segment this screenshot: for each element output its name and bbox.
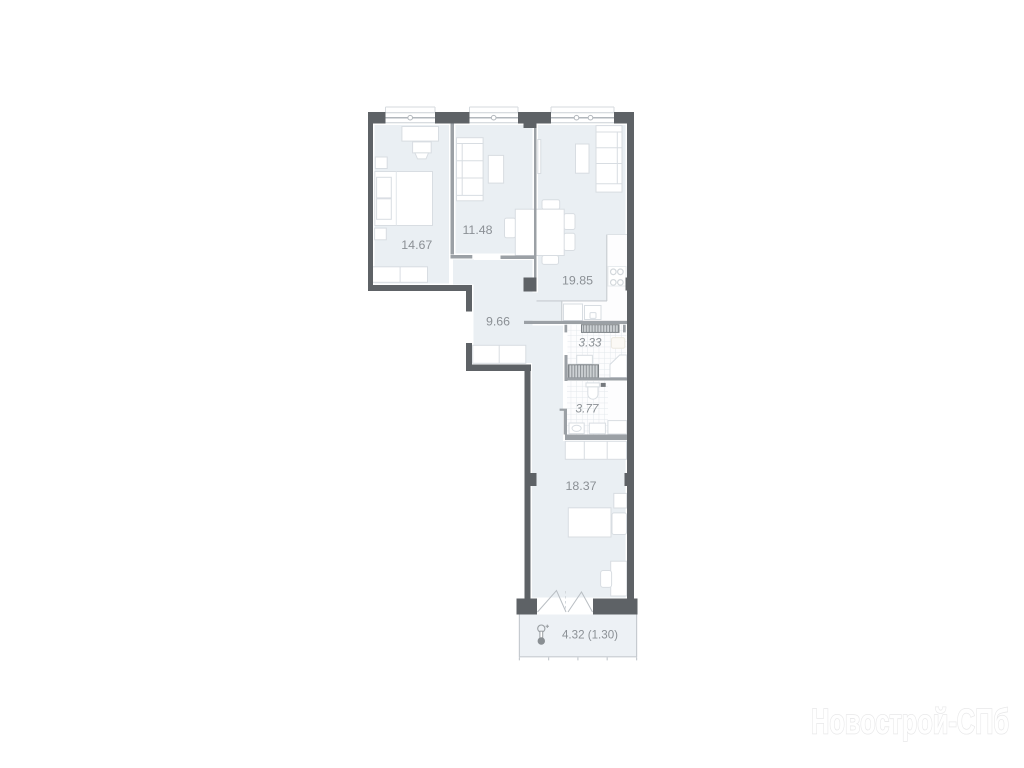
svg-text:4.32 (1.30): 4.32 (1.30) (562, 629, 618, 642)
svg-text:9.66: 9.66 (486, 314, 510, 328)
svg-text:18.37: 18.37 (565, 479, 596, 493)
svg-text:19.85: 19.85 (562, 274, 593, 288)
svg-text:Новострой-СПб: Новострой-СПб (811, 703, 1009, 742)
svg-text:3.77: 3.77 (576, 402, 599, 416)
svg-text:14.67: 14.67 (401, 238, 432, 252)
svg-text:11.48: 11.48 (462, 223, 492, 237)
svg-text:3.33: 3.33 (579, 336, 602, 350)
